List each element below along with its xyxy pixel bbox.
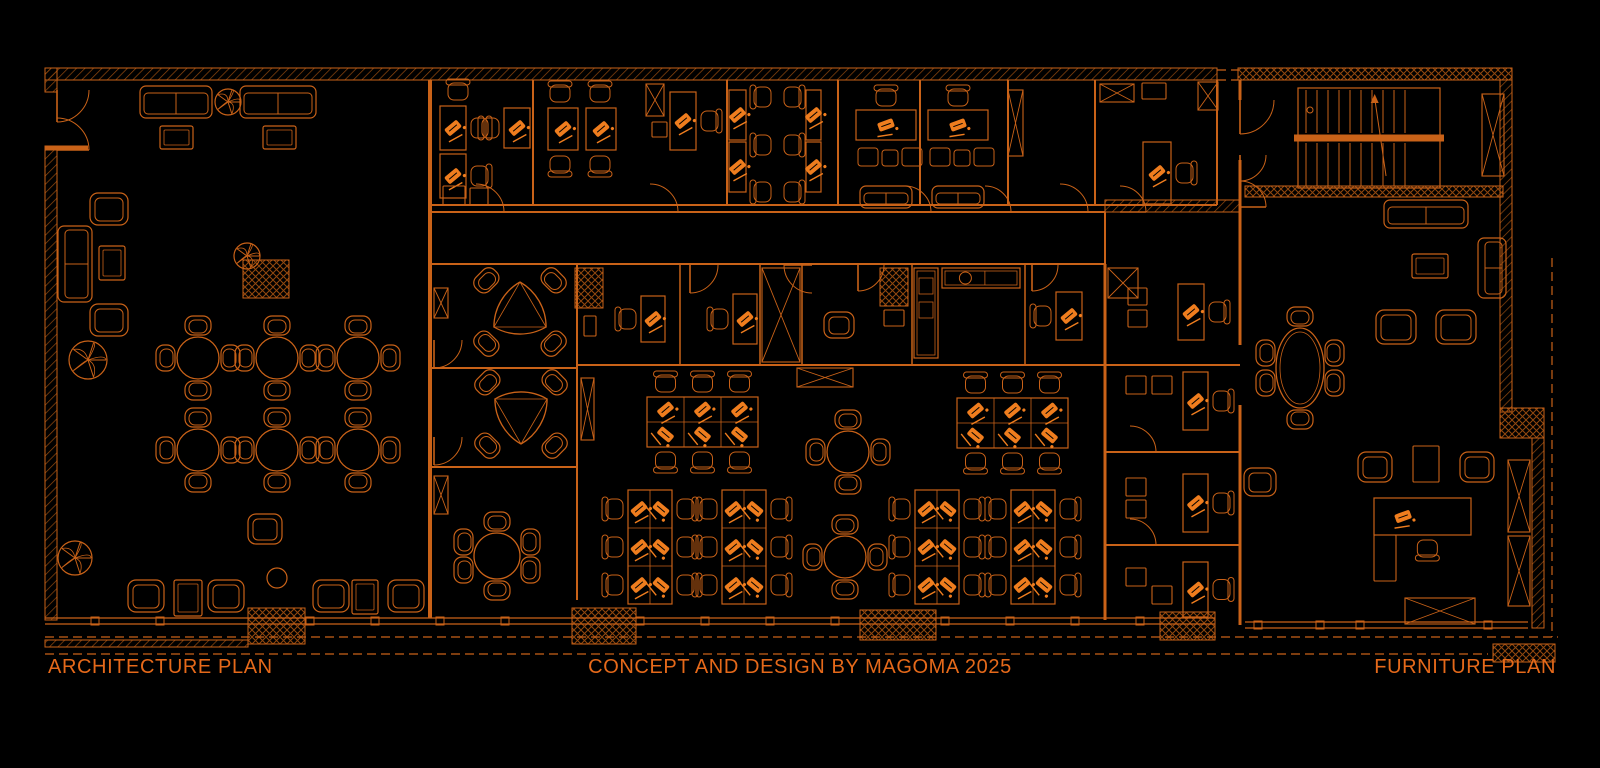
- chair: [345, 408, 371, 427]
- plant-icon: [215, 89, 241, 115]
- office-chair: [654, 371, 678, 392]
- small-round-table: [267, 568, 287, 588]
- plant-icon: [58, 541, 92, 575]
- laptop-icon: [932, 498, 959, 524]
- chair: [471, 430, 503, 462]
- desk: [707, 294, 760, 344]
- side-table: [652, 122, 667, 137]
- shaft: [1100, 84, 1134, 102]
- chair: [235, 437, 254, 463]
- side-table: [1374, 535, 1396, 581]
- workstation-cluster: [957, 372, 1068, 474]
- concept-credit-label: CONCEPT AND DESIGN BY MAGOMA 2025: [0, 656, 1600, 679]
- chair: [454, 557, 473, 583]
- office-chair: [889, 535, 910, 559]
- chair: [1256, 370, 1275, 396]
- desk: [725, 90, 752, 140]
- desk: [1030, 292, 1084, 340]
- laptop-icon: [739, 574, 766, 600]
- chair: [454, 529, 473, 555]
- door-arc: [1032, 265, 1058, 291]
- office-chair: [691, 371, 715, 392]
- coffee-table: [99, 246, 125, 280]
- office-chair: [1060, 535, 1081, 559]
- door-arc: [1130, 426, 1156, 452]
- office-chair: [707, 307, 728, 331]
- office-chair: [1213, 491, 1234, 515]
- chair: [345, 381, 371, 400]
- conference-table: [1256, 307, 1344, 429]
- furniture-plan-label: FURNITURE PLAN: [1374, 656, 1556, 679]
- workstation-cluster: [602, 490, 698, 604]
- chair: [868, 544, 887, 570]
- chair: [221, 345, 240, 371]
- office-chair: [588, 156, 612, 177]
- office-chair: [654, 452, 678, 473]
- office-chair: [677, 535, 698, 559]
- chair: [1325, 340, 1344, 366]
- column-pier: [248, 608, 305, 644]
- column-pier: [572, 608, 636, 644]
- laptop-icon: [1028, 536, 1055, 562]
- meeting-table-round: [454, 512, 540, 600]
- shaft: [1508, 460, 1530, 532]
- laptop-icon: [645, 574, 672, 600]
- staircase-icon: [1294, 88, 1444, 188]
- office-chair: [548, 156, 572, 177]
- laptop-icon: [1183, 579, 1210, 605]
- side-table: [1128, 310, 1147, 327]
- chair: [471, 366, 503, 398]
- desk: [670, 92, 722, 150]
- desk: [1178, 284, 1230, 340]
- office-chair: [1001, 453, 1025, 474]
- office-chair: [874, 85, 898, 106]
- door-arc: [650, 184, 678, 212]
- office-chair: [1213, 389, 1234, 413]
- office-chair: [784, 85, 805, 109]
- desk: [440, 154, 492, 198]
- chair: [221, 437, 240, 463]
- chair: [264, 408, 290, 427]
- office-chair: [615, 307, 636, 331]
- chair: [521, 529, 540, 555]
- armchair: [313, 580, 349, 612]
- sofa: [58, 226, 92, 302]
- coffee-table: [352, 580, 378, 614]
- chair: [1287, 410, 1313, 429]
- office-chair: [1038, 453, 1062, 474]
- chair: [832, 580, 858, 599]
- office-chair: [602, 535, 623, 559]
- meeting-table: [470, 264, 569, 359]
- laptop-icon: [505, 118, 532, 144]
- armchair: [1244, 468, 1276, 496]
- office-chair: [701, 109, 722, 133]
- door-arc: [784, 265, 812, 293]
- manager-desk-suite: [856, 85, 922, 166]
- office-chair: [677, 497, 698, 521]
- cafe-table: [235, 316, 319, 400]
- office-chair: [964, 573, 985, 597]
- chair: [470, 264, 502, 296]
- door-arc: [434, 437, 462, 465]
- office-chair: [946, 85, 970, 106]
- laptop-icon: [1183, 391, 1210, 417]
- wall-hatched: [45, 146, 57, 620]
- laptop-icon: [733, 309, 760, 335]
- column-pier: [880, 268, 908, 306]
- door-arc: [1240, 100, 1274, 134]
- armchair: [1376, 310, 1416, 344]
- cafe-table: [156, 316, 240, 400]
- shaft: [434, 476, 448, 514]
- office-chair: [771, 573, 792, 597]
- coffee-table: [1412, 254, 1448, 278]
- laptop-icon: [589, 119, 616, 145]
- chair: [156, 345, 175, 371]
- chair: [264, 473, 290, 492]
- chair: [156, 437, 175, 463]
- office-chair: [964, 453, 988, 474]
- laptop-icon: [645, 536, 672, 562]
- side-table: [1142, 83, 1166, 99]
- side-table: [1126, 500, 1146, 518]
- side-table: [470, 188, 488, 205]
- office-chair: [446, 79, 470, 100]
- chair: [345, 473, 371, 492]
- chair: [538, 328, 570, 360]
- office-chair: [985, 535, 1006, 559]
- armchair: [208, 580, 244, 612]
- desk: [1183, 562, 1234, 617]
- office-chair: [771, 497, 792, 521]
- chair: [832, 515, 858, 534]
- armchair: [128, 580, 164, 612]
- sofa: [140, 86, 212, 118]
- chair: [539, 430, 571, 462]
- workstation-cluster: [647, 371, 758, 473]
- side-table: [1126, 568, 1146, 586]
- office-chair: [1209, 300, 1230, 324]
- shaft: [1508, 536, 1530, 606]
- chair: [521, 557, 540, 583]
- chair: [806, 439, 825, 465]
- chair: [1287, 307, 1313, 326]
- side-table: [1152, 376, 1172, 394]
- office-chair: [602, 573, 623, 597]
- shaft: [1405, 598, 1475, 624]
- desk: [1183, 474, 1234, 532]
- laptop-icon: [1057, 306, 1084, 332]
- door-arc: [690, 265, 718, 293]
- column-pier: [1500, 408, 1544, 438]
- armchair: [1436, 310, 1476, 344]
- chair: [1256, 340, 1275, 366]
- chair: [470, 328, 502, 360]
- laptop-icon: [723, 423, 750, 449]
- office-chair: [964, 535, 985, 559]
- laptop-icon: [1145, 163, 1172, 189]
- cafe-table: [316, 408, 400, 492]
- office-chair: [964, 372, 988, 393]
- laptop-icon: [739, 498, 766, 524]
- side-table: [1152, 586, 1172, 604]
- cafe-table: [235, 408, 319, 492]
- manager-desk-suite: [928, 85, 994, 166]
- office-chair: [1060, 497, 1081, 521]
- side-table: [1413, 446, 1439, 482]
- armchair: [388, 580, 424, 612]
- desk: [548, 108, 578, 150]
- shaft: [797, 368, 853, 387]
- office-chair: [696, 535, 717, 559]
- door-arc: [434, 340, 462, 368]
- chair: [484, 512, 510, 531]
- desk: [1183, 372, 1234, 430]
- sofa: [1478, 238, 1506, 298]
- office-chair: [1060, 573, 1081, 597]
- workstation-cluster: [985, 490, 1081, 604]
- office-chair: [1415, 540, 1439, 561]
- office-chair: [889, 573, 910, 597]
- coffee-table: [263, 126, 296, 149]
- office-chair: [1213, 578, 1234, 602]
- cafe-table: [806, 410, 890, 494]
- office-chair: [677, 573, 698, 597]
- coffee-table: [174, 580, 202, 616]
- chair: [871, 439, 890, 465]
- desk: [725, 142, 752, 192]
- chair: [264, 381, 290, 400]
- side-table: [884, 310, 904, 326]
- chair: [484, 581, 510, 600]
- armchair: [90, 304, 128, 336]
- office-chair: [1001, 372, 1025, 393]
- armchair: [248, 514, 282, 544]
- sofa: [1384, 200, 1468, 228]
- cafe-table: [316, 316, 400, 400]
- laptop-icon: [945, 117, 972, 139]
- chair: [381, 437, 400, 463]
- office-chair: [985, 573, 1006, 597]
- desk: [801, 90, 828, 140]
- cafe-table: [803, 515, 887, 599]
- shaft: [1108, 268, 1138, 298]
- desk: [1143, 142, 1197, 204]
- office-chair: [588, 81, 612, 102]
- door-arc: [905, 186, 931, 212]
- column-pier: [575, 268, 603, 308]
- armchair: [824, 312, 854, 338]
- chair: [185, 408, 211, 427]
- shaft: [646, 84, 664, 116]
- office-chair: [728, 371, 752, 392]
- side-table: [1126, 478, 1146, 496]
- laptop-icon: [959, 424, 986, 450]
- column-pier: [1160, 612, 1215, 640]
- laptop-icon: [641, 309, 668, 335]
- chair: [803, 544, 822, 570]
- wall-hatched: [45, 68, 57, 92]
- laptop-icon: [551, 119, 578, 145]
- floor-plan-drawing: [0, 0, 1600, 768]
- side-table: [443, 186, 465, 205]
- wall-hatched: [45, 68, 1217, 80]
- door-arc: [1130, 519, 1156, 545]
- chair: [264, 316, 290, 335]
- chair: [381, 345, 400, 371]
- coffee-table: [160, 126, 193, 149]
- laptop-icon: [1179, 302, 1206, 328]
- meeting-table: [471, 366, 570, 461]
- chair: [835, 410, 861, 429]
- office-chair: [889, 497, 910, 521]
- shaft: [434, 288, 448, 318]
- office-chair: [964, 497, 985, 521]
- laptop-icon: [441, 166, 468, 192]
- office-chair: [750, 133, 771, 157]
- door-arc: [57, 90, 89, 122]
- plant-icon: [69, 341, 107, 379]
- armchair: [1460, 452, 1494, 482]
- desk: [801, 142, 828, 192]
- desk: [615, 296, 668, 342]
- shaft: [762, 268, 800, 362]
- column-pier: [1238, 68, 1512, 80]
- laptop-icon: [649, 423, 676, 449]
- chair: [185, 316, 211, 335]
- office-chair: [696, 497, 717, 521]
- shaft: [1198, 82, 1218, 110]
- office-chair: [1176, 161, 1197, 185]
- chair: [835, 475, 861, 494]
- desk: [1374, 498, 1471, 561]
- office-chair: [602, 497, 623, 521]
- kitchen-counter: [914, 268, 938, 358]
- office-chair: [1038, 372, 1062, 393]
- office-chair: [784, 133, 805, 157]
- side-table: [584, 316, 596, 336]
- workstation-cluster: [696, 490, 792, 604]
- office-chair: [985, 497, 1006, 521]
- side-table: [1126, 376, 1146, 394]
- office-chair: [784, 180, 805, 204]
- laptop-icon: [441, 118, 468, 144]
- door-arc: [1240, 155, 1266, 181]
- chair: [185, 473, 211, 492]
- office-chair: [750, 180, 771, 204]
- laptop-icon: [1028, 498, 1055, 524]
- cafe-table: [156, 408, 240, 492]
- door-arc: [1060, 184, 1088, 212]
- office-chair: [750, 85, 771, 109]
- workstation-cluster: [889, 490, 985, 604]
- laptop-icon: [932, 536, 959, 562]
- laptop-icon: [671, 111, 698, 137]
- wall-hatched: [1532, 438, 1544, 628]
- chair: [185, 381, 211, 400]
- sofa: [240, 86, 316, 118]
- chair: [1325, 370, 1344, 396]
- laptop-icon: [996, 424, 1023, 450]
- laptop-icon: [739, 536, 766, 562]
- office-chair: [1030, 304, 1051, 328]
- laptop-icon: [932, 574, 959, 600]
- laptop-icon: [1033, 424, 1060, 450]
- shaft: [1008, 90, 1023, 156]
- armchair: [90, 193, 128, 225]
- column-pier: [860, 610, 936, 640]
- shaft: [581, 378, 594, 440]
- door-arc: [57, 118, 89, 150]
- kitchen-counter: [942, 268, 1020, 288]
- laptop-icon: [1390, 509, 1417, 531]
- chair: [539, 366, 571, 398]
- chair: [235, 345, 254, 371]
- armchair: [1358, 452, 1392, 482]
- floorplan-stage: ARCHITECTURE PLAN CONCEPT AND DESIGN BY …: [0, 0, 1600, 768]
- office-chair: [696, 573, 717, 597]
- laptop-icon: [645, 498, 672, 524]
- laptop-icon: [1183, 493, 1210, 519]
- office-chair: [771, 535, 792, 559]
- laptop-icon: [686, 423, 713, 449]
- chair: [345, 316, 371, 335]
- office-chair: [728, 452, 752, 473]
- office-chair: [691, 452, 715, 473]
- wall-hatched: [45, 640, 248, 647]
- laptop-icon: [1028, 574, 1055, 600]
- office-chair: [548, 81, 572, 102]
- desk: [586, 108, 616, 150]
- laptop-icon: [873, 117, 900, 139]
- chair: [538, 264, 570, 296]
